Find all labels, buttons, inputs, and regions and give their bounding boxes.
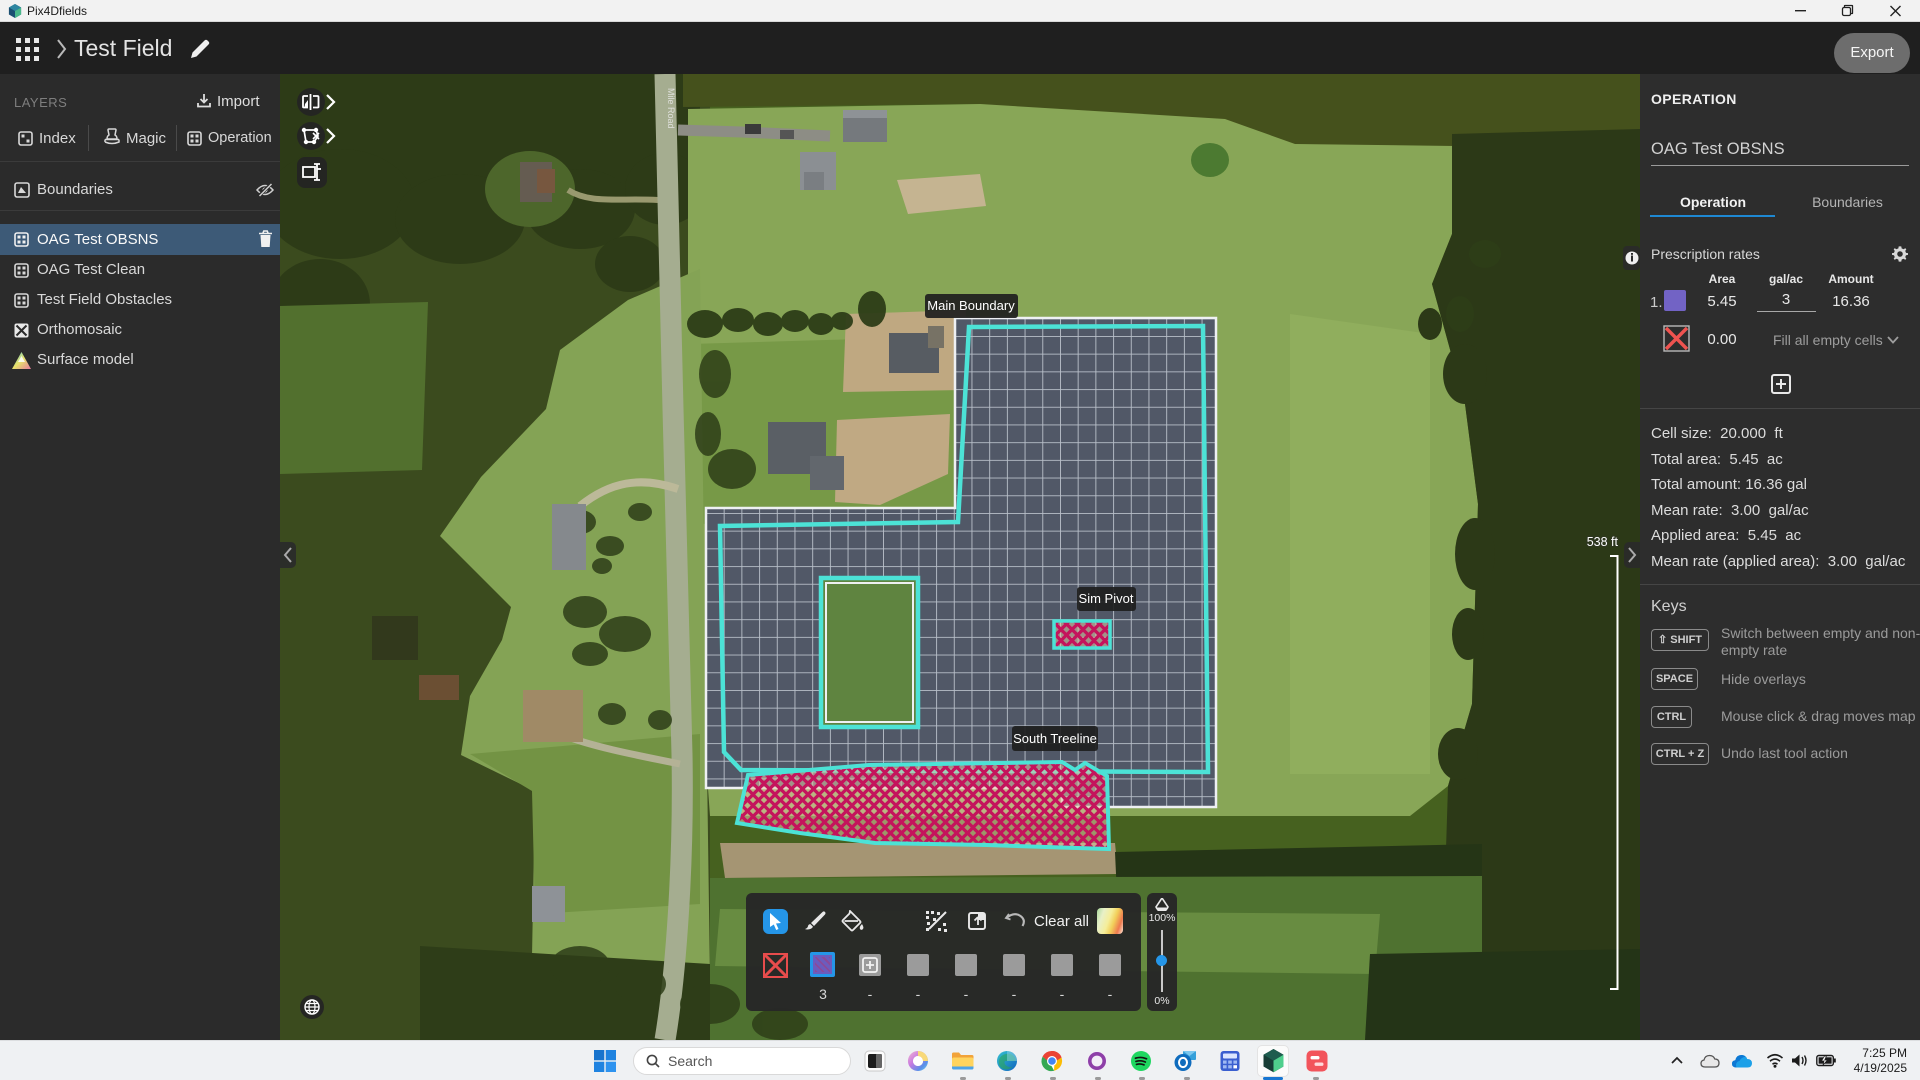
svg-text:Sim Pivot: Sim Pivot — [1079, 591, 1134, 606]
svg-text:Main Boundary: Main Boundary — [927, 298, 1015, 313]
svg-text:Mile Road: Mile Road — [666, 88, 676, 129]
svg-text:538 ft: 538 ft — [1587, 535, 1619, 549]
svg-text:South Treeline: South Treeline — [1013, 731, 1097, 746]
